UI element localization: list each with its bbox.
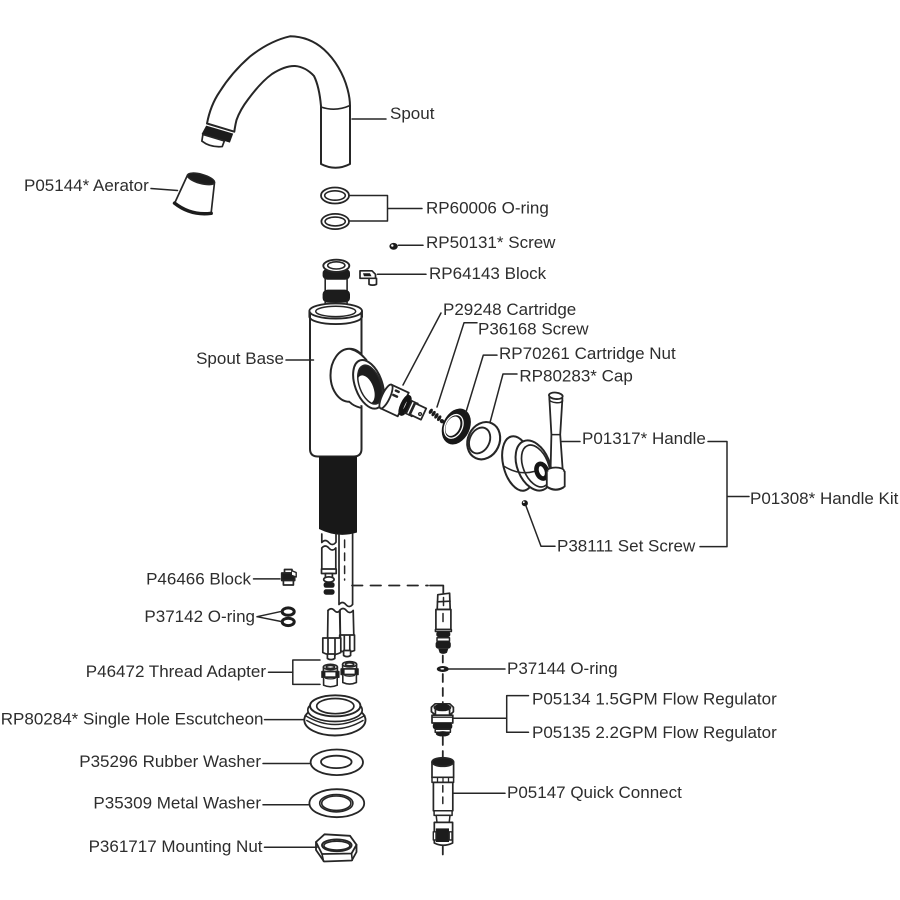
svg-text:RP80283* Cap: RP80283* Cap (519, 366, 632, 385)
svg-text:P46472 Thread Adapter: P46472 Thread Adapter (86, 662, 267, 681)
svg-text:RP64143 Block: RP64143 Block (429, 264, 547, 283)
svg-text:RP70261 Cartridge Nut: RP70261 Cartridge Nut (499, 344, 676, 363)
svg-text:P01308* Handle Kit: P01308* Handle Kit (750, 489, 899, 508)
svg-text:P05147 Quick Connect: P05147 Quick Connect (507, 783, 682, 802)
svg-text:P37142 O-ring: P37142 O-ring (144, 607, 255, 626)
svg-text:P38111 Set Screw: P38111 Set Screw (557, 537, 696, 556)
svg-text:P37144 O-ring: P37144 O-ring (507, 659, 618, 678)
svg-text:P05135 2.2GPM Flow Regulator: P05135 2.2GPM Flow Regulator (532, 723, 777, 742)
svg-text:RP60006 O-ring: RP60006 O-ring (426, 199, 549, 218)
svg-text:RP50131* Screw: RP50131* Screw (426, 233, 556, 252)
svg-text:P35309 Metal Washer: P35309 Metal Washer (93, 794, 261, 813)
svg-text:P46466 Block: P46466 Block (146, 569, 251, 588)
svg-text:Spout Base: Spout Base (196, 349, 284, 368)
svg-text:P361717 Mounting Nut: P361717 Mounting Nut (89, 837, 263, 856)
svg-text:P35296 Rubber Washer: P35296 Rubber Washer (79, 752, 261, 771)
svg-text:P29248 Cartridge: P29248 Cartridge (443, 300, 576, 319)
svg-text:P01317* Handle: P01317* Handle (582, 429, 706, 448)
svg-text:RP80284* Single Hole Escutcheo: RP80284* Single Hole Escutcheon (1, 709, 264, 728)
svg-text:P36168 Screw: P36168 Screw (478, 320, 589, 339)
svg-text:P05134 1.5GPM Flow Regulator: P05134 1.5GPM Flow Regulator (532, 690, 777, 709)
svg-text:Spout: Spout (390, 104, 435, 123)
svg-text:P05144* Aerator: P05144* Aerator (24, 176, 149, 195)
